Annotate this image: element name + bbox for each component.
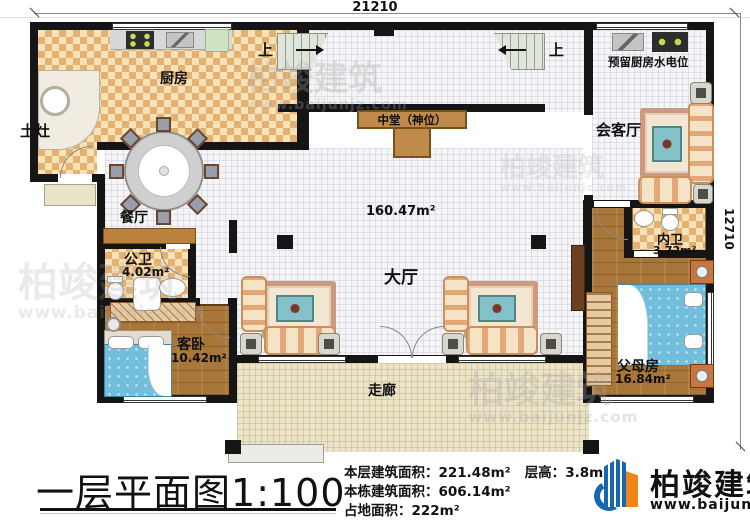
stair-arrowhead-right xyxy=(498,45,506,55)
guest-bedroom-area: 10.42m² xyxy=(171,351,227,365)
stats-line-1: 本层建筑面积：221.48m² 层高：3.8m xyxy=(344,464,603,483)
title-rule-thin xyxy=(40,513,336,514)
dimension-label-width: 21210 xyxy=(320,0,430,15)
column xyxy=(277,235,293,249)
window-utility-north xyxy=(596,23,688,30)
shrine-table-extension xyxy=(393,129,431,158)
kitchen-label: 厨房 xyxy=(160,68,188,88)
dining-chair xyxy=(109,164,124,179)
pillow-icon xyxy=(108,336,134,349)
corridor-label: 走廊 xyxy=(368,380,396,400)
reception-label: 会客厅 xyxy=(596,119,641,140)
floor-plan: 21210 12710 xyxy=(0,0,750,527)
window-parents-south xyxy=(600,396,694,403)
dining-chair xyxy=(204,164,219,179)
shrine-label: 中堂（神位） xyxy=(357,112,467,128)
dining-chair xyxy=(156,117,171,132)
hall-sofa-corner xyxy=(443,276,469,332)
reception-sofa xyxy=(688,102,714,184)
reserved-utility-floor xyxy=(592,30,706,112)
main-hall-label: 大厅 xyxy=(384,263,418,288)
hall-cabinet xyxy=(571,245,585,311)
corridor-floor xyxy=(237,363,589,452)
utility-cooktop-icon xyxy=(652,32,688,52)
pillow-icon xyxy=(684,334,703,349)
hall-side-table xyxy=(240,333,262,355)
stair-up-label-left: 上 xyxy=(258,39,273,60)
stair-up-label-right: 上 xyxy=(549,39,564,60)
logo-building-blue xyxy=(604,459,626,507)
main-hall-area: 160.47m² xyxy=(366,204,435,219)
entrance-step xyxy=(228,444,324,463)
nightstand xyxy=(690,364,714,388)
hall-coffee-table xyxy=(276,295,314,322)
window-guestbed-south xyxy=(123,396,207,403)
cooktop-icon xyxy=(126,31,154,49)
kitchen-side-canopy xyxy=(44,184,96,206)
reserved-utility-label: 预留厨房水电位 xyxy=(608,54,689,70)
earthen-stove-label: 土灶 xyxy=(20,120,50,141)
suite-door-opening xyxy=(594,201,630,207)
nightstand xyxy=(690,260,714,284)
window-parents-east xyxy=(707,292,714,372)
stats-block: 本层建筑面积：221.48m² 层高：3.8m 本栋建筑面积：606.14m² … xyxy=(344,464,603,521)
floor-area-value: 221.48m² xyxy=(439,465,511,481)
reception-loveseat xyxy=(638,176,692,204)
wall-reception-west-upper xyxy=(584,22,593,115)
fridge-icon xyxy=(205,29,229,52)
wall-stub-top-center xyxy=(374,28,394,36)
hall-side-table xyxy=(442,333,464,355)
kitchen-sink-icon xyxy=(166,32,194,48)
wall-left xyxy=(30,22,38,182)
hall-sofa xyxy=(466,326,538,355)
wall-stove-sill-left xyxy=(30,174,58,182)
building-area-label: 本栋建筑面积： xyxy=(344,484,439,500)
brand-logo-icon xyxy=(594,459,642,517)
public-bath-area: 4.02m² xyxy=(122,265,169,279)
dining-chair xyxy=(156,210,171,225)
dimension-label-height: 12710 xyxy=(722,208,736,250)
column xyxy=(583,440,599,454)
bedside-lamp-icon xyxy=(106,317,121,332)
parents-wardrobe xyxy=(586,292,612,386)
utility-sink-icon xyxy=(612,33,644,51)
column xyxy=(531,235,546,249)
washbasin-icon xyxy=(634,210,654,227)
dining-label: 餐厅 xyxy=(120,207,148,227)
reception-side-table xyxy=(690,82,712,104)
dining-table-center xyxy=(159,166,169,176)
dimension-line-right xyxy=(740,13,741,450)
stove-pot-icon xyxy=(40,86,70,116)
public-bath-counter xyxy=(103,228,196,244)
brand-url: www.baijunjz.com xyxy=(650,497,750,513)
stair-arrow-left xyxy=(296,49,318,51)
window-hall-south-left xyxy=(258,356,346,363)
ruler-line xyxy=(0,17,750,18)
washbasin-icon xyxy=(159,278,186,297)
stats-line-3: 占地面积：222m² xyxy=(344,502,603,521)
hall-sofa-corner xyxy=(241,276,267,332)
building-area-value: 606.14m² xyxy=(439,484,511,500)
footprint-value: 222m² xyxy=(412,503,460,519)
column xyxy=(225,440,241,454)
floor-area-label: 本层建筑面积： xyxy=(344,465,439,481)
hall-side-table xyxy=(318,333,340,355)
window-hall-south-right xyxy=(458,356,546,363)
hall-side-table xyxy=(540,333,562,355)
title-rule xyxy=(40,508,336,511)
toilet-bowl-icon xyxy=(107,282,124,300)
inner-bath-area: 3.72m² xyxy=(653,244,696,257)
hall-coffee-table xyxy=(478,295,516,322)
stats-line-2: 本栋建筑面积：606.14m² xyxy=(344,483,603,502)
bathtub-icon xyxy=(133,277,161,311)
stair-arrow-right xyxy=(504,49,526,51)
footprint-label: 占地面积： xyxy=(344,503,412,519)
pillow-icon xyxy=(684,292,703,307)
parents-room-area: 16.84m² xyxy=(615,372,671,386)
reception-coffee-table xyxy=(652,126,682,162)
wall-hall-west-stub xyxy=(229,220,237,253)
stair-arrowhead-left xyxy=(316,45,324,55)
wall-guestbed-east xyxy=(229,302,237,403)
height-label: 层高： xyxy=(525,465,566,481)
reception-side-table xyxy=(693,184,713,204)
